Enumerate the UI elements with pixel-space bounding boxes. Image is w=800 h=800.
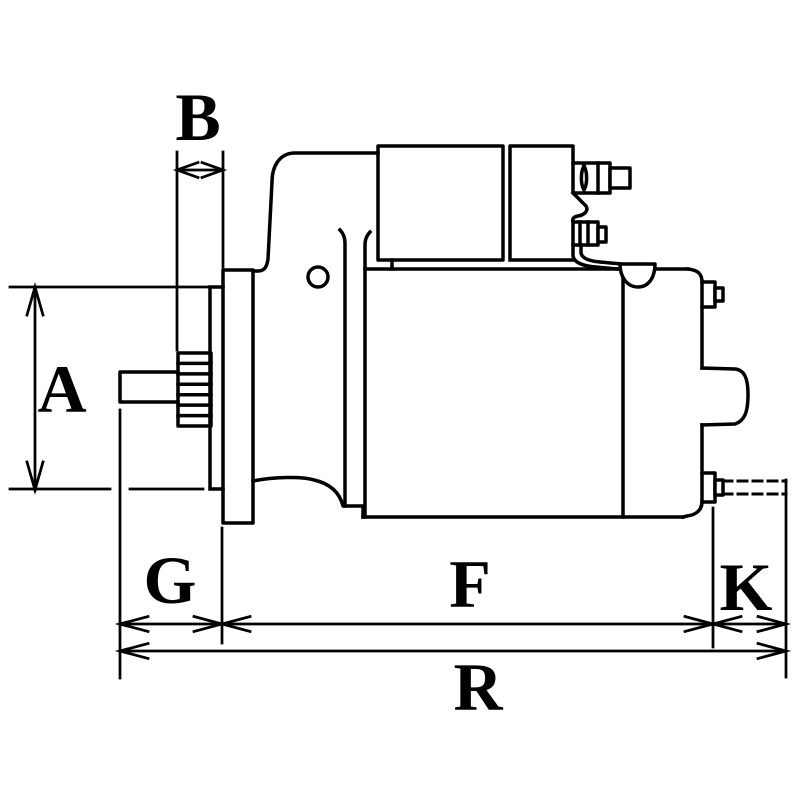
- spade-terminal: [573, 222, 606, 245]
- rear-bump: [702, 368, 748, 425]
- diagram-canvas: B A G F K R: [0, 0, 800, 800]
- solenoid-cap-edge-notch: [573, 193, 587, 222]
- stud-projection-dashed: [723, 481, 786, 494]
- terminal-strap-upper: [581, 245, 621, 264]
- front-bracket-edge-left: [340, 230, 345, 506]
- battery-terminal-base: [573, 163, 610, 193]
- spade-terminal-base: [573, 222, 598, 245]
- motor-yoke: [363, 269, 688, 517]
- pinion-gear-teeth: [178, 363, 211, 415]
- solenoid-cap: [510, 146, 573, 260]
- strap-hook-tab: [620, 264, 655, 287]
- rear-bottom-corner: [683, 502, 702, 517]
- dim-label-b: B: [175, 79, 220, 155]
- through-bolt-bottom: [702, 473, 723, 502]
- mounting-flange: [223, 270, 253, 523]
- dim-label-g: G: [144, 542, 197, 618]
- starter-motor-dimension-drawing: B A G F K R: [0, 0, 800, 800]
- through-bolt-top-tip: [715, 288, 723, 301]
- housing-hole: [308, 267, 328, 287]
- solenoid-body: [378, 146, 503, 260]
- dimensions: [10, 152, 786, 678]
- front-bracket-edge-right: [365, 232, 370, 517]
- dim-label-a: A: [37, 351, 86, 427]
- front-bracket-edges: [340, 230, 370, 517]
- spade-terminal-tab: [598, 227, 606, 242]
- pinion-gear: [178, 353, 211, 426]
- through-bolt-bottom-head: [702, 473, 715, 502]
- terminal-strap: [573, 245, 621, 269]
- battery-terminal: [573, 163, 630, 193]
- dim-label-f: F: [449, 546, 491, 622]
- dim-B: [177, 152, 223, 350]
- rear-top-corner: [688, 269, 702, 282]
- battery-terminal-nut: [610, 168, 630, 188]
- dim-label-r: R: [453, 649, 503, 725]
- starter-motor-drawing: [120, 146, 786, 523]
- drive-housing-arm: [253, 153, 378, 271]
- through-bolt-top: [702, 282, 723, 307]
- dim-label-k: K: [720, 549, 773, 625]
- through-bolt-top-head: [702, 282, 715, 307]
- drive-shaft: [120, 372, 178, 402]
